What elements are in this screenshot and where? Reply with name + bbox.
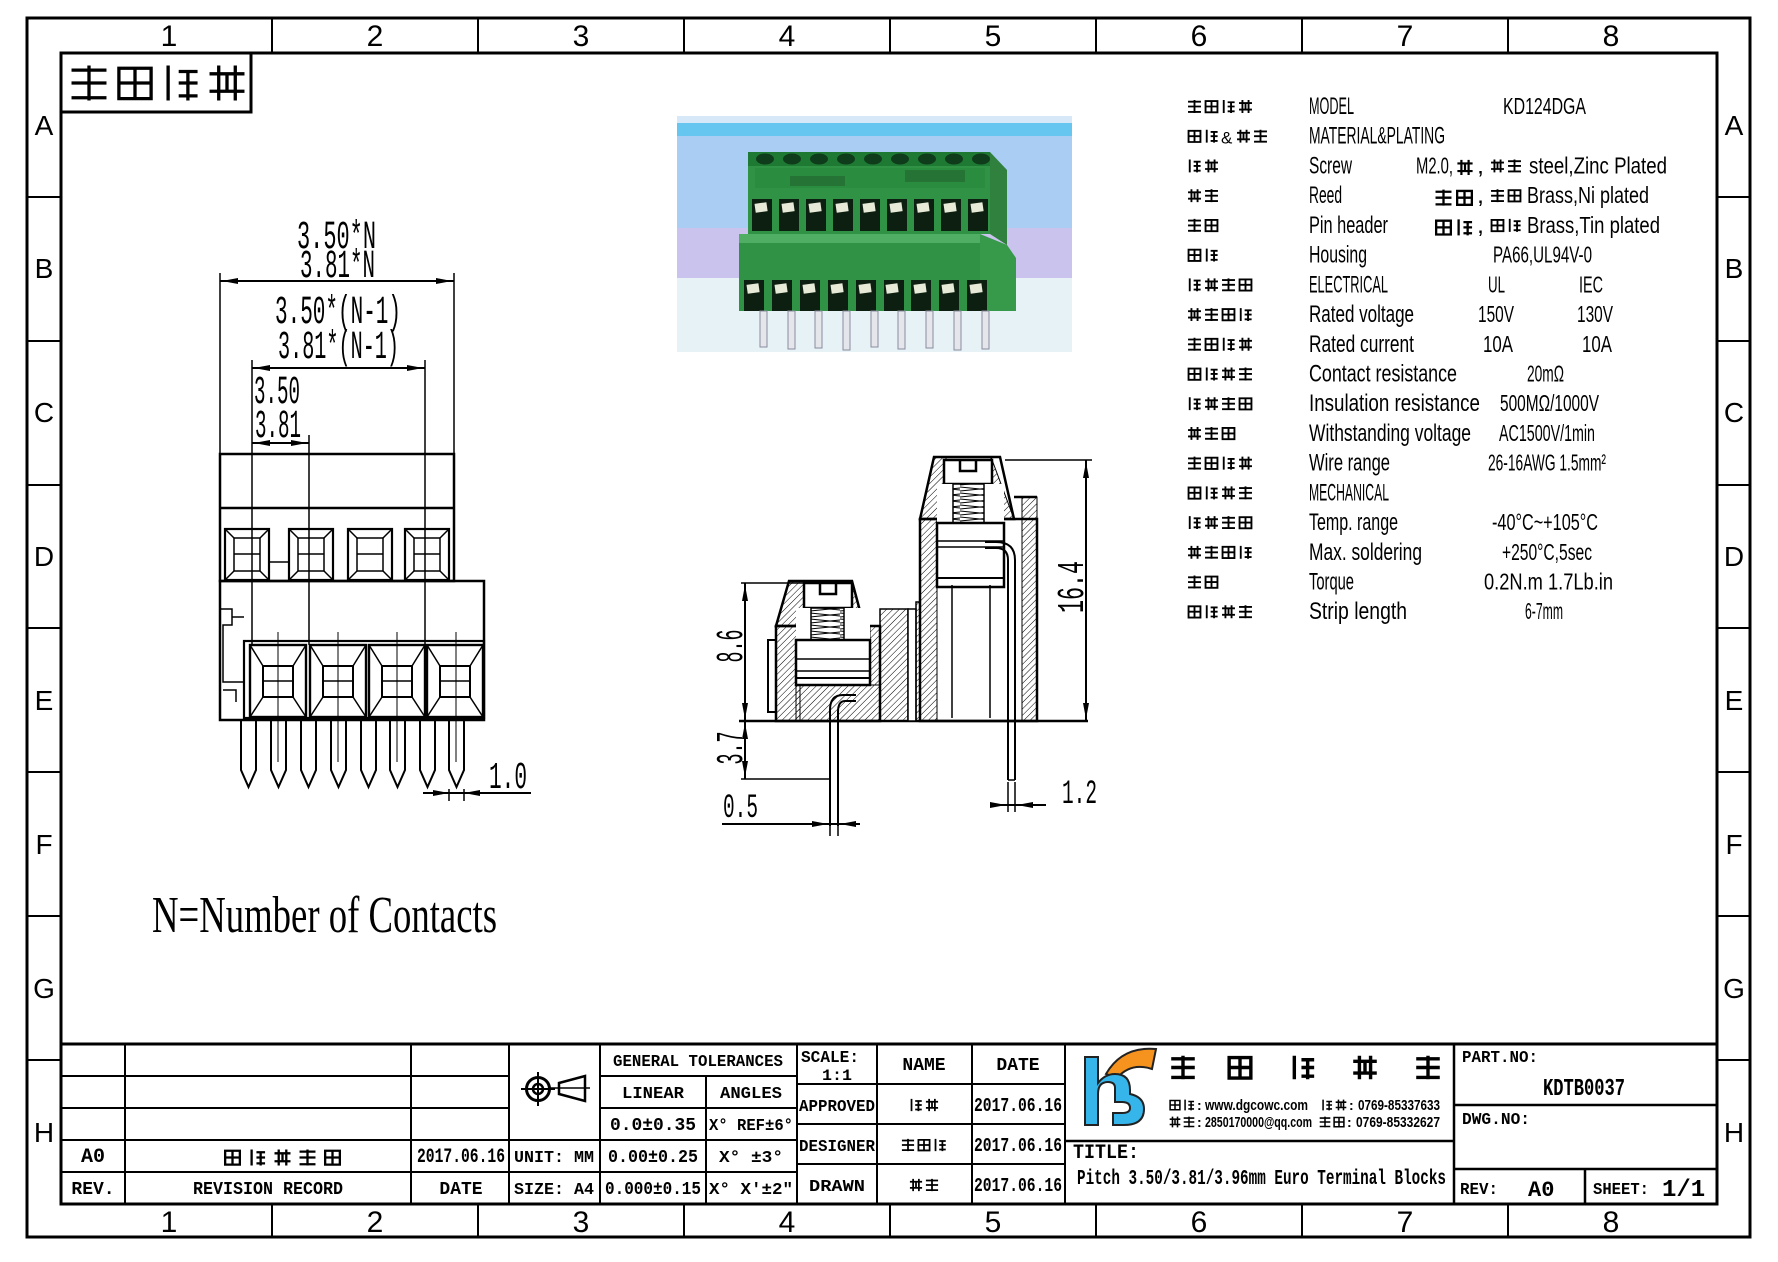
svg-text:3.81*N: 3.81*N: [300, 245, 375, 290]
svg-text:3: 3: [573, 20, 590, 53]
svg-text:20mΩ: 20mΩ: [1527, 360, 1564, 386]
svg-text:130V: 130V: [1577, 301, 1613, 327]
svg-text:KD124DGA: KD124DGA: [1503, 93, 1586, 119]
svg-text:steel,Zinc Plated: steel,Zinc Plated: [1529, 152, 1667, 178]
svg-text:8: 8: [1603, 1206, 1620, 1239]
svg-text:-40°C~+105°C: -40°C~+105°C: [1492, 509, 1598, 535]
svg-text:PART.NO:: PART.NO:: [1462, 1049, 1538, 1068]
svg-text:Insulation resistance: Insulation resistance: [1309, 390, 1480, 417]
svg-text:Contact resistance: Contact resistance: [1309, 360, 1457, 387]
svg-text:1: 1: [161, 1206, 178, 1239]
svg-text:8: 8: [1603, 20, 1620, 53]
svg-text:LINEAR: LINEAR: [622, 1085, 685, 1104]
svg-text:DATE: DATE: [439, 1180, 482, 1200]
svg-text:Rated current: Rated current: [1309, 331, 1414, 358]
svg-text:2017.06.16: 2017.06.16: [974, 1095, 1062, 1117]
svg-text:X° ±3°: X° ±3°: [719, 1149, 783, 1168]
svg-text:0.00±0.25: 0.00±0.25: [608, 1148, 698, 1168]
svg-text:X° REF±6°: X° REF±6°: [709, 1117, 793, 1136]
svg-text:10A: 10A: [1582, 331, 1612, 357]
svg-text:4: 4: [779, 1206, 796, 1239]
svg-text:PA66,UL94V-0: PA66,UL94V-0: [1493, 242, 1592, 268]
svg-text:A0: A0: [1528, 1178, 1554, 1203]
svg-text:0.5: 0.5: [723, 790, 758, 828]
svg-text:MECHANICAL: MECHANICAL: [1309, 479, 1389, 506]
svg-text:ELECTRICAL: ELECTRICAL: [1309, 271, 1388, 298]
svg-text:6-7mm: 6-7mm: [1525, 598, 1563, 624]
svg-text:Pin header: Pin header: [1309, 212, 1388, 239]
svg-text:F: F: [1725, 829, 1742, 860]
svg-text:8.6: 8.6: [711, 630, 754, 663]
svg-text:Temp. range: Temp. range: [1309, 509, 1398, 536]
svg-text::: :: [1197, 1097, 1202, 1113]
svg-text:150V: 150V: [1478, 301, 1514, 327]
svg-text:5: 5: [985, 20, 1002, 53]
svg-text:E: E: [1725, 685, 1744, 716]
svg-text:APPROVED: APPROVED: [799, 1098, 875, 1117]
svg-text:Withstanding voltage: Withstanding voltage: [1309, 420, 1471, 447]
svg-text:,: ,: [1477, 152, 1484, 178]
svg-text:0769-85337633: 0769-85337633: [1358, 1097, 1440, 1114]
svg-text:UNIT: MM: UNIT: MM: [514, 1149, 594, 1168]
svg-text:6: 6: [1191, 1206, 1208, 1239]
svg-text:7: 7: [1397, 20, 1414, 53]
svg-text:2017.06.16: 2017.06.16: [417, 1146, 505, 1169]
svg-text:SIZE: A4: SIZE: A4: [514, 1181, 594, 1200]
svg-text:&: &: [1221, 129, 1233, 148]
svg-text:10A: 10A: [1483, 331, 1513, 357]
svg-text:Brass,Tin plated: Brass,Tin plated: [1527, 212, 1660, 238]
svg-text:SCALE:: SCALE:: [801, 1049, 859, 1068]
svg-text:AC1500V/1min: AC1500V/1min: [1499, 420, 1595, 446]
svg-text:0.2N.m 1.7Lb.in: 0.2N.m 1.7Lb.in: [1484, 569, 1613, 595]
svg-text:26-16AWG 1.5mm²: 26-16AWG 1.5mm²: [1488, 450, 1606, 476]
svg-text:Torque: Torque: [1309, 569, 1354, 596]
svg-text:G: G: [33, 973, 55, 1004]
svg-text:G: G: [1723, 973, 1745, 1004]
svg-text:TITLE:: TITLE:: [1073, 1142, 1139, 1165]
svg-text:Rated voltage: Rated voltage: [1309, 301, 1414, 328]
svg-text:2017.06.16: 2017.06.16: [974, 1175, 1062, 1197]
svg-text:3.81*(N-1): 3.81*(N-1): [278, 326, 399, 371]
svg-text:DESIGNER: DESIGNER: [799, 1138, 876, 1157]
svg-text:Pitch 3.50/3.81/3.96mm Euro Te: Pitch 3.50/3.81/3.96mm Euro Terminal Blo…: [1077, 1168, 1446, 1191]
svg-text:MODEL: MODEL: [1309, 93, 1354, 120]
svg-text:1.0: 1.0: [489, 757, 527, 800]
svg-text:Max. soldering: Max. soldering: [1309, 539, 1422, 566]
svg-text:UL: UL: [1488, 271, 1505, 297]
svg-text:DWG.NO:: DWG.NO:: [1462, 1111, 1530, 1130]
svg-text:B: B: [35, 253, 54, 284]
svg-text:3: 3: [573, 1206, 590, 1239]
svg-text::: :: [1347, 1114, 1352, 1130]
svg-text:0769-85332627: 0769-85332627: [1356, 1114, 1440, 1131]
svg-text:F: F: [35, 829, 52, 860]
svg-text:H: H: [1724, 1117, 1744, 1148]
svg-text::: :: [1349, 1097, 1354, 1113]
svg-text:Housing: Housing: [1309, 242, 1367, 269]
svg-text:2017.06.16: 2017.06.16: [974, 1135, 1062, 1157]
svg-text:0.0±0.35: 0.0±0.35: [610, 1116, 696, 1136]
svg-text:1:1: 1:1: [822, 1067, 852, 1085]
svg-text:500MΩ/1000V: 500MΩ/1000V: [1500, 390, 1599, 416]
svg-text:www.dgcowc.com: www.dgcowc.com: [1204, 1097, 1308, 1114]
svg-text:B: B: [1725, 253, 1744, 284]
svg-text:MATERIAL&PLATING: MATERIAL&PLATING: [1309, 123, 1445, 150]
svg-text:Screw: Screw: [1309, 152, 1352, 179]
svg-text:7: 7: [1397, 1206, 1414, 1239]
svg-text:M2.0,: M2.0,: [1416, 152, 1453, 178]
svg-text::: :: [1197, 1114, 1202, 1130]
svg-text:NAME: NAME: [902, 1056, 945, 1076]
svg-text:SHEET:: SHEET:: [1593, 1181, 1649, 1200]
svg-text:2: 2: [367, 1206, 384, 1239]
svg-text:Strip length: Strip length: [1309, 598, 1407, 625]
svg-text:D: D: [34, 541, 54, 572]
svg-text:DRAWN: DRAWN: [809, 1178, 865, 1197]
svg-text:A: A: [1725, 110, 1744, 141]
svg-text:A0: A0: [81, 1146, 105, 1169]
svg-text:E: E: [35, 685, 54, 716]
svg-text:Wire range: Wire range: [1309, 450, 1390, 477]
svg-text:REV:: REV:: [1460, 1181, 1498, 1200]
svg-text:+250°C,5sec: +250°C,5sec: [1502, 539, 1592, 565]
svg-text:3.7: 3.7: [711, 732, 754, 765]
svg-text:6: 6: [1191, 20, 1208, 53]
svg-text:GENERAL TOLERANCES: GENERAL TOLERANCES: [613, 1053, 783, 1072]
svg-text:N=Number of Contacts: N=Number of Contacts: [152, 887, 497, 944]
svg-text:4: 4: [779, 20, 796, 53]
svg-text:1: 1: [161, 20, 178, 53]
svg-text:,: ,: [1477, 212, 1484, 238]
svg-text:ANGLES: ANGLES: [720, 1085, 782, 1104]
svg-text:REVISION RECORD: REVISION RECORD: [193, 1180, 343, 1200]
svg-text:A: A: [35, 110, 54, 141]
svg-text:2850170000@qq.com: 2850170000@qq.com: [1205, 1114, 1312, 1131]
svg-text:1.2: 1.2: [1062, 776, 1097, 814]
svg-text:1/1: 1/1: [1662, 1177, 1705, 1204]
svg-text:Reed: Reed: [1309, 182, 1342, 209]
svg-text:D: D: [1724, 541, 1744, 572]
svg-text:,: ,: [1477, 182, 1484, 208]
svg-text:IEC: IEC: [1579, 271, 1603, 297]
svg-text:16.4: 16.4: [1052, 561, 1095, 613]
svg-text:C: C: [1724, 397, 1744, 428]
svg-text:X° X'±2": X° X'±2": [709, 1181, 793, 1200]
svg-text:REV.: REV.: [71, 1180, 114, 1200]
svg-text:H: H: [34, 1117, 54, 1148]
svg-text:C: C: [34, 397, 54, 428]
svg-text:0.000±0.15: 0.000±0.15: [605, 1180, 701, 1200]
svg-text:DATE: DATE: [996, 1056, 1039, 1076]
svg-text:KDTB0037: KDTB0037: [1543, 1076, 1625, 1103]
svg-text:2: 2: [367, 20, 384, 53]
svg-text:Brass,Ni plated: Brass,Ni plated: [1527, 182, 1649, 208]
svg-text:5: 5: [985, 1206, 1002, 1239]
